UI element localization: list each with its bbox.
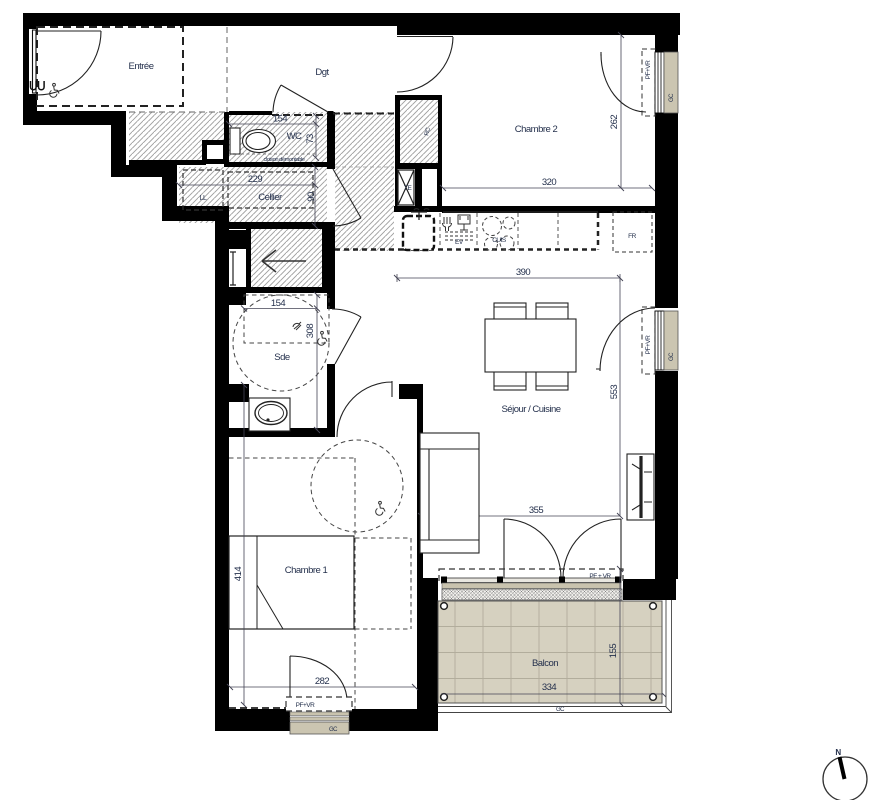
svg-text:cloison démontable: cloison démontable	[264, 157, 305, 163]
svg-text:355: 355	[529, 505, 544, 516]
svg-text:Chambre 1: Chambre 1	[285, 565, 328, 576]
svg-text:Sde: Sde	[274, 352, 290, 363]
svg-text:GC: GC	[669, 352, 675, 361]
svg-text:155: 155	[608, 644, 619, 659]
svg-text:GC: GC	[669, 93, 675, 102]
svg-text:TE: TE	[404, 185, 412, 192]
svg-text:PF+VR: PF+VR	[296, 702, 315, 709]
svg-text:390: 390	[516, 267, 531, 278]
svg-text:WC: WC	[287, 131, 302, 142]
svg-text:N: N	[835, 748, 841, 757]
svg-text:CUIS: CUIS	[492, 237, 507, 244]
svg-text:LL: LL	[200, 195, 207, 202]
svg-text:308: 308	[305, 324, 316, 339]
svg-text:229: 229	[248, 174, 263, 185]
svg-text:154: 154	[271, 298, 286, 309]
svg-text:PF+VR: PF+VR	[645, 335, 652, 354]
svg-text:73: 73	[305, 134, 316, 144]
svg-text:414: 414	[233, 567, 244, 582]
svg-text:EV: EV	[455, 239, 464, 246]
svg-text:Entrée: Entrée	[129, 61, 154, 72]
svg-text:PF+VR: PF+VR	[645, 60, 652, 79]
svg-text:90: 90	[306, 192, 317, 202]
svg-text:GC: GC	[556, 707, 565, 713]
svg-text:Cellier: Cellier	[258, 192, 282, 203]
svg-text:FR: FR	[628, 233, 636, 240]
svg-text:154: 154	[273, 114, 288, 125]
svg-text:334: 334	[542, 682, 557, 693]
svg-text:GC: GC	[329, 727, 338, 733]
svg-text:Chambre 2: Chambre 2	[515, 124, 558, 135]
svg-text:Dgt: Dgt	[315, 67, 329, 78]
svg-text:320: 320	[542, 177, 557, 188]
svg-text:Séjour / Cuisine: Séjour / Cuisine	[501, 404, 560, 415]
svg-text:282: 282	[315, 676, 330, 687]
svg-text:Balcon: Balcon	[532, 658, 558, 669]
svg-text:553: 553	[609, 385, 620, 400]
svg-text:262: 262	[609, 115, 620, 130]
